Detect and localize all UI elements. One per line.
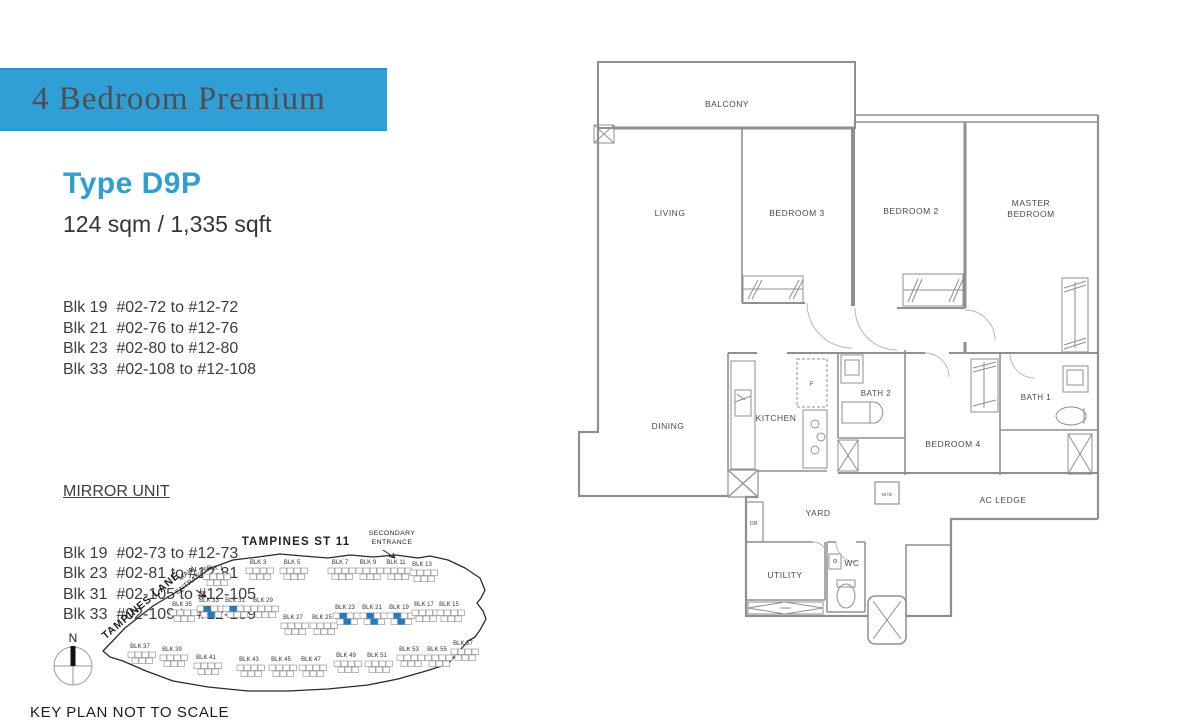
unit-square [360, 613, 367, 619]
block-label: BLK 17 [414, 602, 434, 608]
unit-square [167, 655, 174, 661]
mirror-unit-title: MIRROR UNIT [63, 482, 256, 503]
unit-square [273, 671, 280, 677]
stack-line: Blk 21 #02-76 to #12-76 [63, 319, 256, 340]
bath1-shaft-icon [1068, 434, 1092, 474]
block-label: BLK 23 [335, 605, 355, 611]
unit-square [160, 655, 167, 661]
secondary-entrance-label-2: ENTRANCE [372, 539, 413, 546]
room-label: UTILITY [767, 570, 802, 580]
unit-square [248, 671, 255, 677]
unit-square [237, 606, 244, 612]
unit-square [320, 665, 327, 671]
unit-square-highlighted [367, 613, 374, 619]
unit-square [264, 574, 271, 580]
unit-square [314, 629, 321, 635]
unit-square [224, 574, 231, 580]
unit-square [215, 663, 222, 669]
unit-square [188, 616, 195, 622]
unit-square [313, 665, 320, 671]
unit-square [364, 619, 371, 625]
block-label: BLK 3 [250, 560, 267, 566]
unit-square [191, 610, 198, 616]
unit-square [258, 665, 265, 671]
keyplan-block: BLK 7 [328, 560, 356, 580]
unit-square [301, 568, 308, 574]
unit-square [251, 606, 258, 612]
secondary-entrance-label-1: SECONDARY [369, 530, 416, 537]
block-label: BLK 9 [360, 560, 377, 566]
unit-square [284, 574, 291, 580]
unit-square [280, 568, 287, 574]
unit-square [430, 616, 437, 622]
unit-square [388, 574, 395, 580]
unit-square [250, 574, 257, 580]
keyplan-block: BLK 37 [128, 644, 156, 664]
unit-square [377, 568, 384, 574]
unit-square [181, 616, 188, 622]
unit-square [211, 606, 218, 612]
north-label: N [69, 631, 78, 645]
unit-square [345, 667, 352, 673]
unit-square [299, 629, 306, 635]
unit-square [378, 619, 385, 625]
unit-square [363, 568, 370, 574]
unit-square [281, 623, 288, 629]
keyplan-block: BLK 43 [237, 657, 265, 677]
unit-square [379, 661, 386, 667]
unit-square [214, 580, 221, 586]
stove-icon [803, 410, 827, 468]
keyplan-block: BLK 53 [397, 647, 425, 667]
unit-square [351, 619, 358, 625]
room-label: DINING [652, 421, 685, 431]
unit-square [244, 606, 251, 612]
master-wardrobe [1062, 278, 1088, 352]
secondary-entrance-arrow [383, 550, 395, 558]
unit-square [387, 613, 394, 619]
unit-square [208, 663, 215, 669]
unit-square [292, 629, 299, 635]
unit-square [149, 652, 156, 658]
unit-square [404, 655, 411, 661]
main-entrance-arrow [196, 590, 206, 597]
unit-square [349, 568, 356, 574]
unit-square [262, 612, 269, 618]
keyplan-block: BLK 11 [384, 560, 412, 580]
keyplan-block: BLK 39 [160, 647, 188, 667]
unit-square [383, 667, 390, 673]
unit-square [354, 613, 361, 619]
keyplan-block: BLK 29 [251, 598, 279, 618]
left-wall [579, 128, 728, 496]
room-label: DB [750, 521, 758, 527]
unit-square [342, 568, 349, 574]
unit-square [337, 619, 344, 625]
keyplan-block: BLK 33 [197, 598, 225, 618]
unit-square-highlighted [398, 619, 405, 625]
unit-square [328, 568, 335, 574]
block-label: BLK 39 [162, 647, 182, 653]
unit-square [398, 568, 405, 574]
unit-square [210, 574, 217, 580]
unit-square [324, 623, 331, 629]
unit-square [332, 574, 339, 580]
unit-square [276, 665, 283, 671]
unit-square [417, 570, 424, 576]
stack-list: Blk 19 #02-72 to #12-72Blk 21 #02-76 to … [63, 298, 256, 380]
unit-square [258, 606, 265, 612]
room-label: MASTER [1012, 198, 1050, 208]
unit-square [339, 574, 346, 580]
keyplan-block: BLK 49 [334, 653, 362, 673]
unit-square [386, 661, 393, 667]
unit-square-highlighted [204, 606, 211, 612]
unit-square [234, 612, 241, 618]
unit-square [348, 661, 355, 667]
unit-square [171, 661, 178, 667]
unit-square [288, 623, 295, 629]
unit-square [365, 661, 372, 667]
unit-square [395, 574, 402, 580]
unit-square [178, 661, 185, 667]
block-label: BLK 7 [332, 560, 349, 566]
unit-square [429, 661, 436, 667]
unit-square [251, 665, 258, 671]
ac-unit-bottom-icon [868, 596, 906, 644]
unit-square [444, 610, 451, 616]
unit-square [201, 612, 208, 618]
unit-square [215, 612, 222, 618]
stack-line: Blk 23 #02-80 to #12-80 [63, 339, 256, 360]
unit-square [369, 667, 376, 673]
unit-square [237, 665, 244, 671]
block-label: BLK 19 [389, 605, 409, 611]
unit-square [418, 655, 425, 661]
unit-square [310, 623, 317, 629]
keyplan-block: BLK 27 [281, 615, 309, 635]
unit-square [244, 665, 251, 671]
block-label: BLK 15 [439, 602, 459, 608]
unit-square [419, 610, 426, 616]
shaft-walls [906, 545, 951, 616]
unit-square [425, 655, 432, 661]
room-label: BEDROOM 3 [769, 208, 825, 218]
unit-area: 124 sqm / 1,335 sqft [63, 211, 271, 238]
keyplan-block: BLK 9 [356, 560, 384, 580]
block-label: BLK 27 [283, 615, 303, 621]
keyplan-block: BLK 23 [333, 605, 361, 625]
bed4-wardrobe [971, 359, 998, 412]
unit-square [458, 649, 465, 655]
unit-square [391, 568, 398, 574]
block-label: BLK 31 [225, 598, 245, 604]
unit-square [333, 613, 340, 619]
unit-square [255, 612, 262, 618]
room-label: KITCHEN [756, 413, 797, 423]
unit-square [201, 663, 208, 669]
unit-square [269, 665, 276, 671]
unit-square [241, 671, 248, 677]
unit-square [416, 616, 423, 622]
unit-square [436, 661, 443, 667]
block-label: BLK 25 [312, 615, 332, 621]
bath2-sink [841, 355, 863, 383]
room-label: BALCONY [705, 99, 749, 109]
keyplan-block: BLK 15 [437, 602, 465, 622]
block-label: BLK 53 [399, 647, 419, 653]
unit-square [265, 606, 272, 612]
keyplan-caption: KEY PLAN NOT TO SCALE [30, 704, 229, 721]
unit-square [415, 661, 422, 667]
unit-square [221, 580, 228, 586]
unit-square [370, 568, 377, 574]
floor-plan: BALCONYLIVINGBEDROOM 3BEDROOM 2MASTERBED… [565, 50, 1200, 660]
stack-line: Blk 33 #02-108 to #12-108 [63, 360, 256, 381]
keyplan-block: BLK 45 [269, 657, 297, 677]
keyplan-block: BLK 41 [194, 655, 222, 675]
bath1-toilet [1056, 407, 1086, 425]
unit-square [405, 619, 412, 625]
unit-square [331, 623, 338, 629]
unit-square [139, 658, 146, 664]
unit-square-highlighted [394, 613, 401, 619]
unit-square [246, 568, 253, 574]
unit-square [177, 610, 184, 616]
keyplan-block: BLK 3 [246, 560, 274, 580]
wc-toilet [837, 580, 855, 608]
keyplan-block: BLK 51 [365, 653, 393, 673]
unit-square [451, 649, 458, 655]
unit-square [423, 616, 430, 622]
unit-square [391, 619, 398, 625]
block-label: BLK 11 [386, 560, 406, 566]
unit-square [426, 610, 433, 616]
unit-square [346, 574, 353, 580]
unit-square [170, 610, 177, 616]
unit-square-highlighted [208, 612, 215, 618]
unit-square [360, 574, 367, 580]
unit-square [367, 574, 374, 580]
unit-square [272, 606, 279, 612]
key-plan: TAMPINES ST 11 SECONDARY ENTRANCE MAIN E… [28, 518, 498, 708]
unit-square [441, 616, 448, 622]
unit-square [310, 671, 317, 677]
room-label: BATH 1 [1021, 393, 1051, 402]
unit-square [317, 671, 324, 677]
unit-square [303, 671, 310, 677]
lane-label: TAMPINES LANE [100, 570, 183, 642]
unit-square-highlighted [371, 619, 378, 625]
bath2-shaft-icon [838, 440, 858, 471]
unit-square [432, 655, 439, 661]
unit-square [285, 629, 292, 635]
block-label: BLK 5 [284, 560, 301, 566]
unit-square [458, 610, 465, 616]
block-label: BLK 41 [196, 655, 216, 661]
unit-square [227, 612, 234, 618]
bath1-sink [1063, 366, 1088, 392]
room-label: BEDROOM 2 [883, 206, 939, 216]
north-arrow-icon: N [54, 631, 92, 685]
unit-square [439, 655, 446, 661]
unit-square [306, 665, 313, 671]
unit-square [335, 568, 342, 574]
utility-louver [748, 602, 823, 614]
unit-square-highlighted [230, 606, 237, 612]
unit-square [174, 616, 181, 622]
unit-square [260, 568, 267, 574]
balcony-walls [598, 62, 855, 128]
keyplan-block: BLK 57 [451, 641, 479, 661]
unit-square [338, 667, 345, 673]
unit-square [328, 629, 335, 635]
unit-square [356, 568, 363, 574]
spacer [63, 421, 256, 441]
unit-square [135, 652, 142, 658]
unit-square [347, 613, 354, 619]
unit-square [294, 568, 301, 574]
unit-square [212, 669, 219, 675]
block-label: BLK 29 [253, 598, 273, 604]
room-label: LIVING [655, 208, 686, 218]
keyplan-block: BLK 31 [223, 598, 251, 618]
unit-square [164, 661, 171, 667]
keyplan-block: BLK 13 [410, 562, 438, 582]
block-label: BLK 37 [130, 644, 150, 650]
unit-square [414, 576, 421, 582]
shaft-icon [728, 470, 758, 497]
unit-square [374, 574, 381, 580]
room-label: BEDROOM [1007, 209, 1054, 219]
block-label: BLK 43 [239, 657, 259, 663]
unit-square [321, 629, 328, 635]
keyplan-block: BLK 1 [203, 566, 231, 586]
room-label: YARD [806, 508, 831, 518]
keyplan-block: BLK 35 [170, 602, 198, 622]
unit-square [253, 568, 260, 574]
service-walls [746, 497, 1098, 616]
unit-square [410, 570, 417, 576]
street-label: TAMPINES ST 11 [242, 536, 351, 548]
unit-square [469, 655, 476, 661]
room-label: BATH 2 [861, 389, 891, 398]
unit-square [146, 658, 153, 664]
unit-square [217, 574, 224, 580]
room-label: AC LEDGE [980, 495, 1027, 505]
unit-square [455, 616, 462, 622]
unit-square [290, 665, 297, 671]
unit-square [455, 655, 462, 661]
block-label: BLK 21 [362, 605, 382, 611]
block-label: BLK 47 [301, 657, 321, 663]
unit-square [295, 623, 302, 629]
unit-square [397, 655, 404, 661]
keyplan-block: BLK 47 [299, 657, 327, 677]
unit-square [269, 612, 276, 618]
keyplan-block: BLK 19 [387, 605, 415, 625]
unit-square-highlighted [344, 619, 351, 625]
unit-square [298, 574, 305, 580]
unit-type-title: 4 Bedroom Premium [0, 81, 326, 118]
unit-square [376, 667, 383, 673]
svg-text:TAMPINES LANE: TAMPINES LANE [100, 570, 183, 642]
unit-square [207, 580, 214, 586]
unit-code: Type D9P [63, 167, 202, 201]
unit-square [352, 667, 359, 673]
room-label: W/D [882, 492, 893, 498]
unit-square [372, 661, 379, 667]
unit-square [374, 613, 381, 619]
unit-square [401, 613, 408, 619]
keyplan-block: BLK 17 [412, 602, 440, 622]
unit-square [421, 576, 428, 582]
bath2-tub [842, 402, 883, 423]
unit-square [181, 655, 188, 661]
unit-square [267, 568, 274, 574]
unit-square [448, 616, 455, 622]
unit-square [424, 570, 431, 576]
wc-sink [829, 554, 841, 569]
unit-square [402, 574, 409, 580]
block-label: BLK 55 [427, 647, 447, 653]
unit-square [299, 665, 306, 671]
unit-square [203, 574, 210, 580]
unit-square [472, 649, 479, 655]
unit-square [205, 669, 212, 675]
room-label: F [810, 382, 814, 388]
unit-square [334, 661, 341, 667]
unit-square [302, 623, 309, 629]
keyplan-block: BLK 21 [360, 605, 388, 625]
unit-square [341, 661, 348, 667]
room-label: BEDROOM 4 [925, 439, 981, 449]
unit-square [223, 606, 230, 612]
unit-square [184, 610, 191, 616]
unit-square [291, 574, 298, 580]
unit-square [465, 649, 472, 655]
unit-square [257, 574, 264, 580]
unit-square [128, 652, 135, 658]
block-label: BLK 57 [453, 641, 473, 647]
unit-square [411, 655, 418, 661]
unit-square [412, 610, 419, 616]
block-label: BLK 49 [336, 653, 356, 659]
unit-square [462, 655, 469, 661]
unit-square [451, 610, 458, 616]
room-label: WC [844, 558, 859, 568]
unit-square-highlighted [340, 613, 347, 619]
unit-square [287, 671, 294, 677]
unit-square [381, 613, 388, 619]
unit-square [142, 652, 149, 658]
block-label: BLK 33 [199, 598, 219, 604]
unit-square [408, 661, 415, 667]
stack-line: Blk 19 #02-72 to #12-72 [63, 298, 256, 319]
brochure-page: 4 Bedroom Premium Type D9P 124 sqm / 1,3… [0, 0, 1200, 724]
unit-square [401, 661, 408, 667]
unit-square [446, 655, 453, 661]
bed2-wardrobe [903, 274, 963, 306]
block-label: BLK 51 [367, 653, 387, 659]
unit-square [280, 671, 287, 677]
keyplan-block: BLK 5 [280, 560, 308, 580]
unit-square [384, 568, 391, 574]
unit-square [287, 568, 294, 574]
unit-square [437, 610, 444, 616]
block-label: BLK 45 [271, 657, 291, 663]
unit-square [255, 671, 262, 677]
